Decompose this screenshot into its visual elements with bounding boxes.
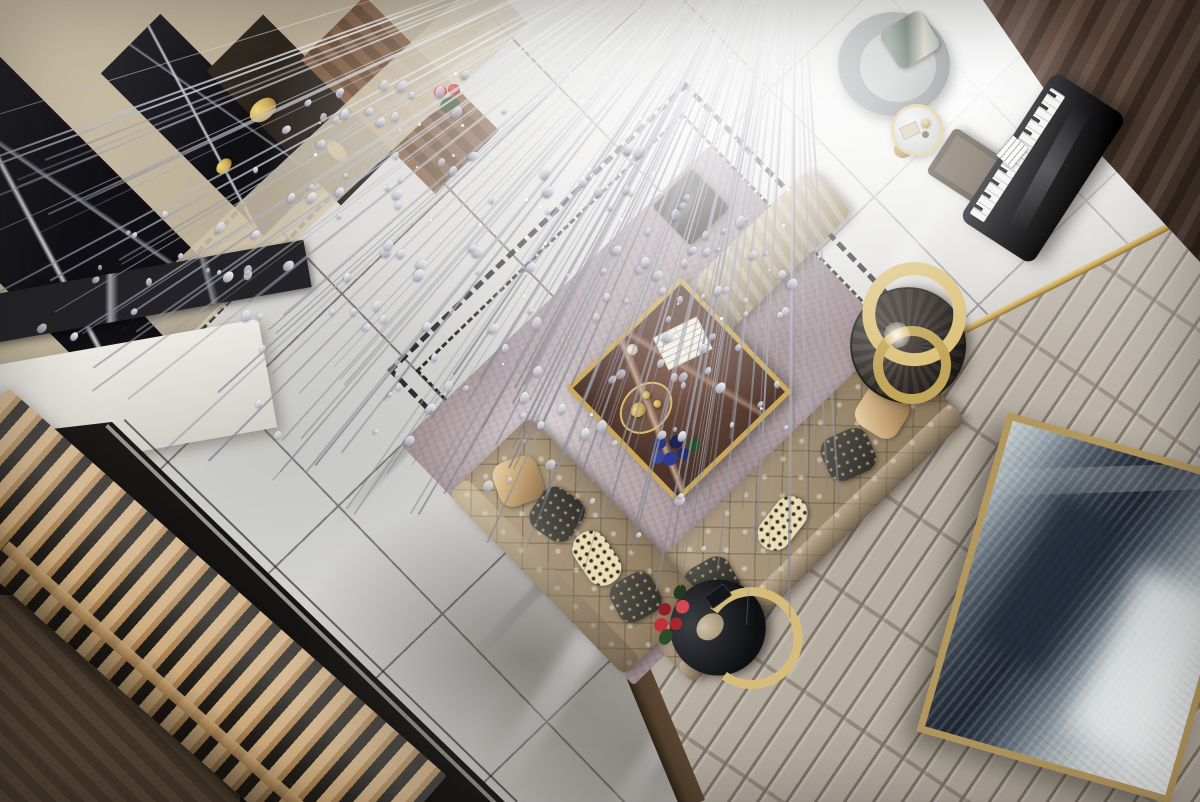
rose xyxy=(673,597,692,616)
scene-root xyxy=(0,0,1200,802)
flower xyxy=(651,434,669,452)
painting-light-blotch xyxy=(1065,566,1200,767)
rose xyxy=(656,600,674,618)
pillow-sequin xyxy=(816,423,880,485)
